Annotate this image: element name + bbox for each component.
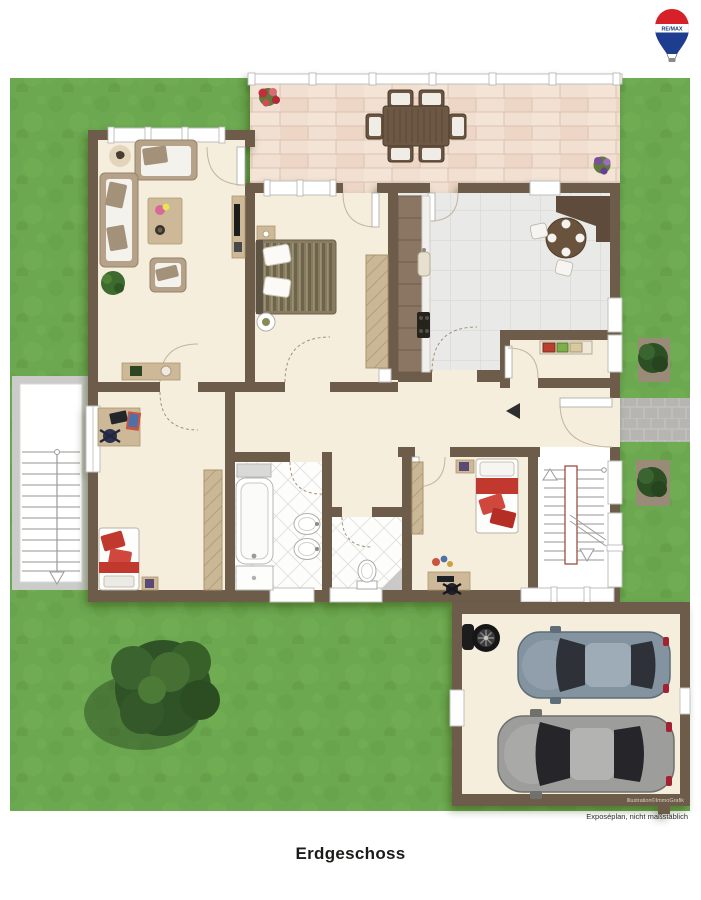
countertop: [422, 196, 430, 372]
garage-side-door: [680, 688, 690, 714]
loveseat: [135, 140, 197, 180]
floor-plan-illustration: RE/MAX: [0, 0, 701, 900]
toilet: [357, 560, 377, 589]
plant: [101, 271, 125, 295]
single-bed: [99, 528, 139, 590]
entrance-path: [620, 398, 690, 442]
bush-upper: [638, 338, 670, 382]
floor-plan-page: RE/MAX Illustration©ImmoGrafik Exposépla…: [0, 0, 701, 900]
car-blue-gray: [518, 626, 670, 704]
wardrobe: [412, 462, 423, 534]
remax-logo-text: RE/MAX: [662, 27, 683, 33]
stair-stringer: [565, 466, 577, 564]
tv-board: [232, 196, 245, 258]
bathtub: [236, 478, 273, 564]
armchair: [150, 258, 186, 292]
tire-stack: [462, 624, 500, 652]
dining-table: [383, 106, 449, 146]
illustrator-watermark: Illustration©ImmoGrafik: [626, 798, 684, 804]
single-bed: [476, 459, 518, 533]
sideboard: [122, 363, 180, 380]
shower: [236, 566, 273, 590]
exterior-stairs: [12, 376, 90, 590]
sink: [418, 252, 430, 276]
wardrobe: [366, 255, 388, 368]
double-bed: [256, 240, 336, 314]
car-silver: [498, 709, 674, 799]
sofa: [100, 173, 138, 267]
office-chair: [100, 429, 120, 443]
building: [86, 127, 623, 603]
washer: [237, 464, 271, 477]
scale-disclaimer: Exposéplan, nicht maßstäblich: [586, 812, 688, 821]
floor-title: Erdgeschoss: [0, 844, 701, 864]
pantry: [540, 341, 592, 354]
garage: [450, 602, 690, 814]
stove: [417, 312, 430, 338]
bush-lower: [636, 460, 670, 506]
wardrobe: [204, 470, 222, 590]
entrance-door-leaf: [560, 398, 612, 407]
coffee-table: [148, 198, 182, 244]
